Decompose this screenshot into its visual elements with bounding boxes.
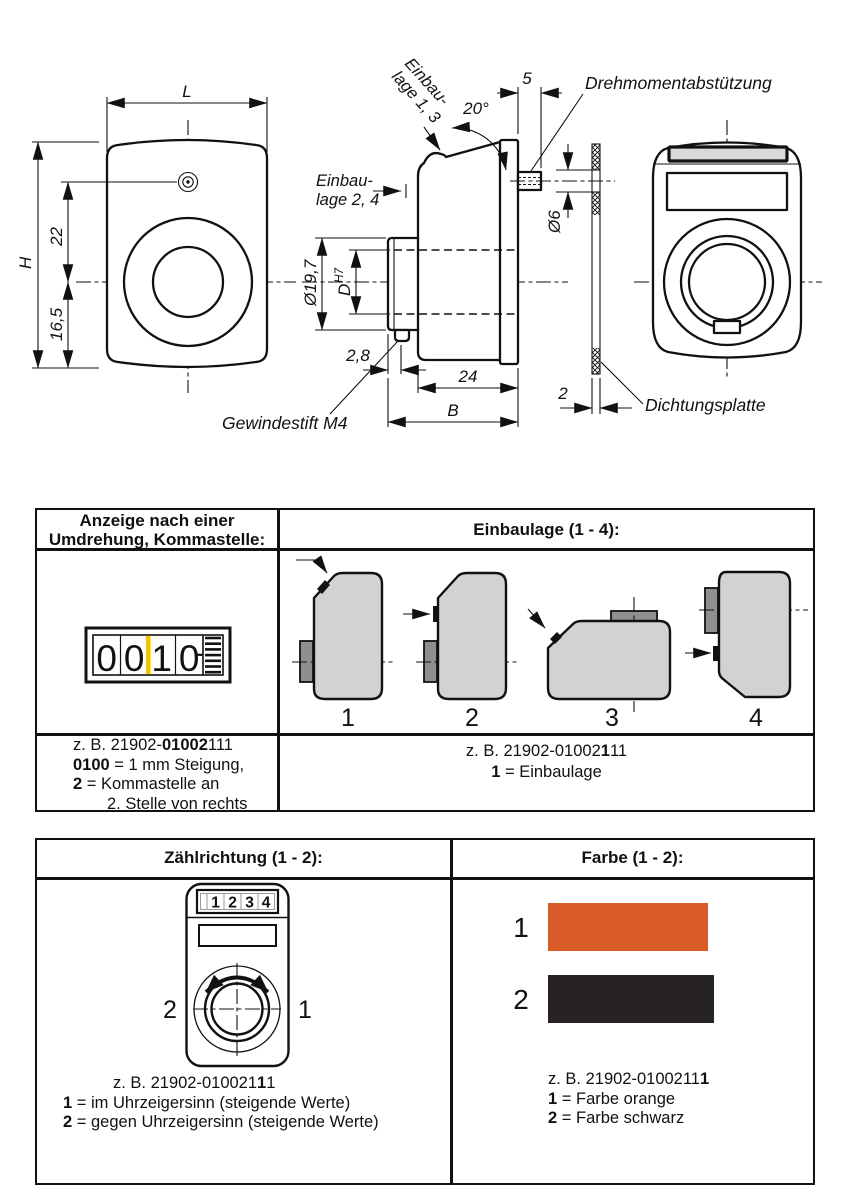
caption-line: 0100 = 1 mm Steigung,: [73, 756, 247, 776]
dim-label-24: 24: [458, 367, 478, 386]
dim-label-L: L: [182, 82, 191, 101]
side-view: Ø19,7 DH7 2,8 24 B 5 20°: [222, 55, 615, 433]
dim-label-2: 2: [557, 384, 568, 403]
counter-digit-2: 0: [124, 638, 145, 679]
housing-silhouette: [719, 572, 790, 697]
flange: [500, 140, 518, 364]
table2-header-right: Farbe (1 - 2):: [452, 848, 813, 867]
dim-label-B: B: [447, 401, 458, 420]
front-view: L H 22 16,5: [16, 82, 296, 393]
table1-header-left: Anzeige nach einer Umdrehung, Kommastell…: [37, 511, 277, 549]
color-swatches: 1 2: [505, 895, 720, 1035]
label-einbaulage-2-4-line1: Einbau-: [316, 172, 373, 190]
dim-label-5: 5: [522, 69, 532, 88]
counter-display: 0 0 1 0: [84, 626, 232, 684]
leader-dichtungsplatte: [601, 362, 643, 404]
caption-line: 2 = Farbe schwarz: [548, 1109, 709, 1129]
direction-number-left: 2: [163, 996, 177, 1024]
caption-line: 2. Stelle von rechts: [73, 795, 247, 815]
position-1: 1: [292, 560, 394, 732]
table2-caption-right: z. B. 21902-01002111 1 = Farbe orange 2 …: [548, 1070, 709, 1129]
dim-label-H: H: [16, 256, 35, 269]
position-3: 3: [528, 597, 670, 732]
caption-line: z. B. 21902-01002111: [63, 1074, 379, 1094]
dim-label-D: DH7: [334, 267, 354, 296]
caption-line: 2 = Kommastelle an: [73, 775, 247, 795]
dim-label-phi19-7: Ø19,7: [301, 259, 320, 307]
label-einbaulage-2-4-line2: lage 2, 4: [316, 191, 379, 209]
swatch-orange: [548, 903, 708, 951]
position-arrow: [528, 609, 545, 628]
table1-header-right: Einbaulage (1 - 4):: [280, 520, 813, 539]
device-digit-1: 1: [211, 895, 220, 912]
knob-notch: [714, 321, 740, 333]
header-anzeige-line2: Umdrehung, Kommastelle:: [37, 530, 277, 549]
counter-digit-4: 0: [179, 638, 200, 679]
caption-line: z. B. 21902-01002111: [73, 736, 247, 756]
caption-line: 1 = Einbaulage: [280, 762, 813, 783]
dim-label-20deg: 20°: [462, 99, 489, 118]
housing-silhouette: [548, 621, 670, 699]
position-number-1: 1: [341, 704, 355, 732]
display-window: [667, 173, 787, 210]
caption-line: 1 = Farbe orange: [548, 1090, 709, 1110]
position-4: 4: [685, 572, 808, 732]
device-digit-4: 4: [262, 895, 271, 912]
position-number-4: 4: [749, 704, 763, 732]
thumbwheel-knurl: [205, 638, 221, 672]
leader-drehmoment: [531, 94, 583, 171]
counter-digit-1: 0: [96, 638, 117, 679]
leader-arrow-einbaulage-1-3: [424, 127, 440, 150]
dim-label-22: 22: [47, 227, 66, 247]
header-anzeige-line1: Anzeige nach einer: [37, 511, 277, 530]
table2-column-divider: [450, 838, 453, 1185]
seal-plate: [592, 144, 600, 374]
housing-silhouette: [314, 573, 382, 699]
comma-marker: [146, 636, 151, 674]
caption-line: z. B. 21902-01002111: [280, 741, 813, 762]
position-2: 2: [403, 573, 518, 732]
zaehlrichtung-device: 1 2 3 4 2 1: [150, 878, 440, 1074]
drive-nub: [713, 646, 719, 661]
body-outline: [418, 142, 500, 360]
position-number-2: 2: [465, 704, 479, 732]
position-arrow: [296, 560, 327, 573]
set-screw: [395, 330, 409, 341]
caption-line: 2 = gegen Uhrzeigersinn (steigende Werte…: [63, 1113, 379, 1133]
color-number-2: 2: [513, 984, 529, 1015]
device-digit-3: 3: [245, 895, 254, 912]
dim-label-2-8: 2,8: [345, 346, 370, 365]
label-dichtungsplatte: Dichtungsplatte: [645, 395, 766, 415]
catalog-page: L H 22 16,5: [0, 0, 848, 1200]
table1-caption-right: z. B. 21902-01002111 1 = Einbaulage: [280, 741, 813, 783]
swatch-black: [548, 975, 714, 1023]
dim-label-phi6: Ø6: [545, 210, 564, 234]
label-drehmoment: Drehmomentabstützung: [585, 73, 772, 93]
direction-number-right: 1: [298, 996, 312, 1024]
hollow-shaft: [388, 238, 418, 330]
label-gewindestift: Gewindestift M4: [222, 413, 348, 433]
einbaulage-pictograms: 1 2 3 4: [278, 548, 815, 733]
caption-line: 1 = im Uhrzeigersinn (steigende Werte): [63, 1094, 379, 1114]
housing-silhouette: [438, 573, 506, 699]
position-number-3: 3: [605, 704, 619, 732]
table2-header-left: Zählrichtung (1 - 2):: [37, 848, 450, 867]
table2-caption-left: z. B. 21902-01002111 1 = im Uhrzeigersin…: [63, 1074, 379, 1133]
caption-line: z. B. 21902-01002111: [548, 1070, 709, 1090]
back-view: Drehmomentabstützung: [531, 73, 822, 377]
torque-support-slot: [669, 147, 787, 161]
device-digit-2: 2: [228, 895, 237, 912]
drive-nub: [433, 606, 439, 622]
technical-drawing: L H 22 16,5: [0, 0, 848, 470]
table1-caption-left: z. B. 21902-01002111 0100 = 1 mm Steigun…: [73, 736, 247, 814]
dim-label-16-5: 16,5: [47, 307, 66, 341]
device-label-window: [199, 925, 276, 946]
dim-label-H7: H7: [334, 267, 346, 282]
screw-center: [186, 180, 189, 183]
color-number-1: 1: [513, 912, 529, 943]
counter-digit-3: 1: [151, 638, 172, 679]
